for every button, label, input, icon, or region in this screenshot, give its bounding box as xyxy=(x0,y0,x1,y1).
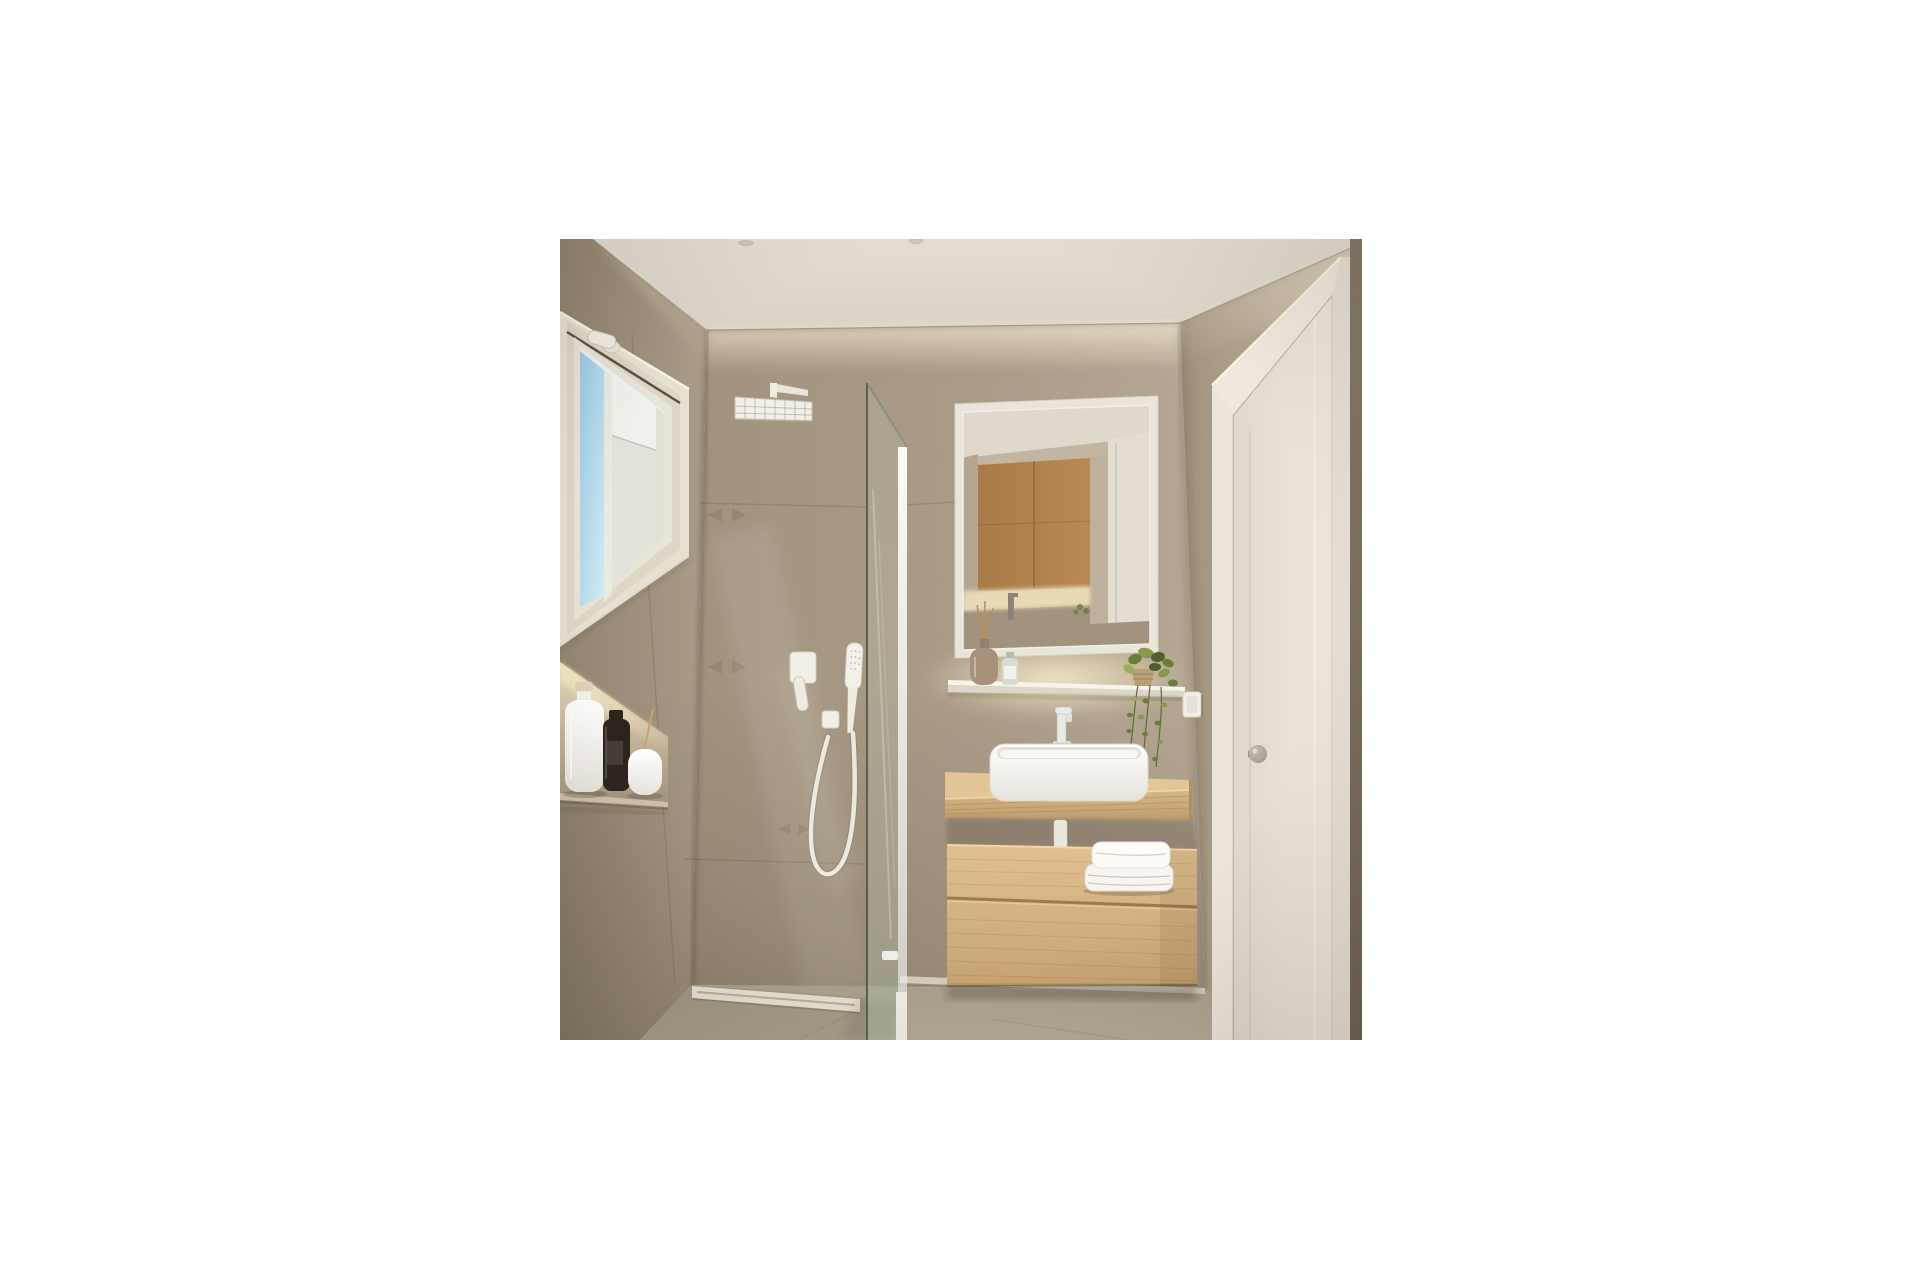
bathroom-render-svg xyxy=(560,239,1362,1040)
vignette xyxy=(560,239,1362,1040)
bathroom-render xyxy=(560,239,1362,1040)
